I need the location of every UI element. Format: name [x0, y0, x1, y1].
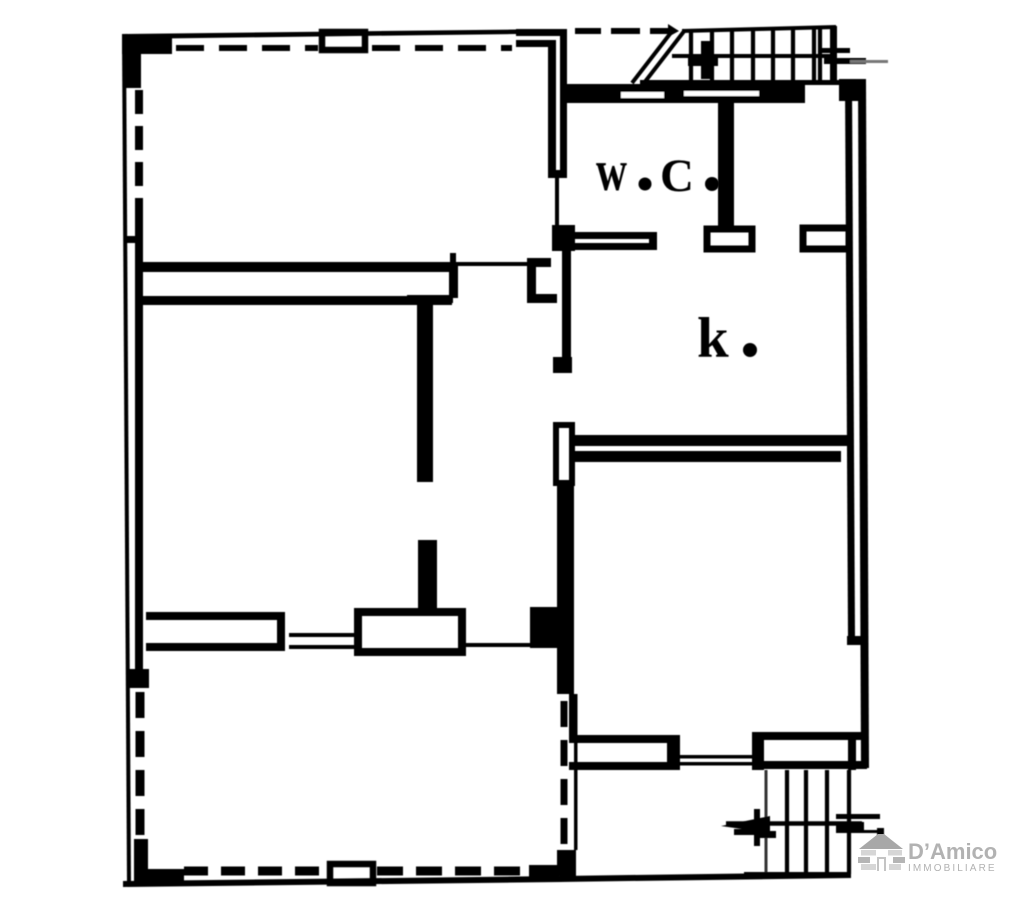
svg-text:D’Amico: D’Amico [908, 839, 997, 864]
svg-text:IMMOBILIARE: IMMOBILIARE [908, 863, 997, 874]
svg-text:k: k [697, 307, 729, 370]
svg-text:C: C [660, 150, 694, 202]
svg-text:w: w [596, 140, 627, 204]
